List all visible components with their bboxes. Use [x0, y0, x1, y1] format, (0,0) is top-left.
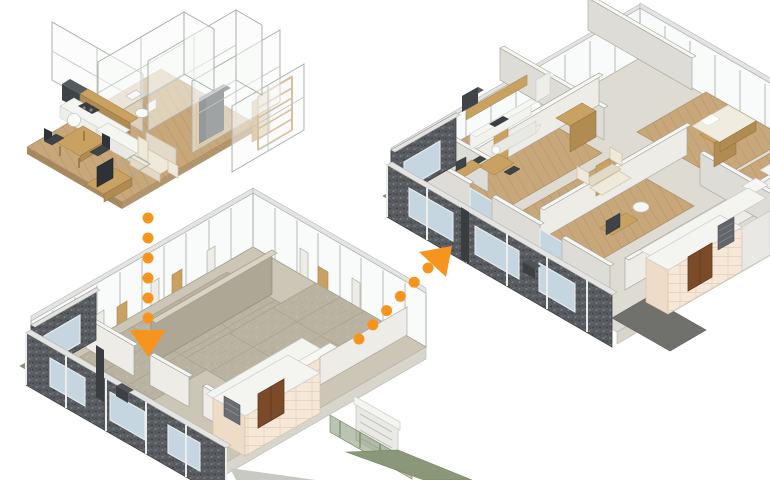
- arrow-dot: [409, 277, 420, 288]
- balcony-divider: [461, 207, 469, 264]
- structural-floor-model: [20, 188, 472, 480]
- arrow-dot: [143, 213, 154, 224]
- arrow-head: [419, 246, 452, 277]
- arrow-dot: [381, 305, 392, 316]
- toilet: [136, 109, 149, 118]
- unit-interior-model: [27, 10, 304, 209]
- arrow-dot: [143, 313, 154, 324]
- pendant-lamp: [492, 146, 500, 154]
- ground-path: [230, 468, 316, 480]
- round-table: [633, 202, 649, 212]
- balcony-divider: [96, 345, 104, 402]
- arrow-dot: [367, 319, 378, 330]
- arrow-dot: [423, 263, 434, 274]
- arrow-dot: [395, 291, 406, 302]
- arrow-dot: [143, 253, 154, 264]
- glass-partition: [236, 10, 262, 95]
- pendant-lamp: [68, 114, 81, 127]
- arrow-dot: [354, 334, 365, 345]
- full-floor-model: [383, 0, 770, 351]
- arrow-dot: [143, 293, 154, 304]
- arrow-dot: [143, 233, 154, 244]
- diagram-canvas: [0, 0, 770, 480]
- arrow-dot: [143, 273, 154, 284]
- bim-workflow-diagram: [0, 0, 770, 480]
